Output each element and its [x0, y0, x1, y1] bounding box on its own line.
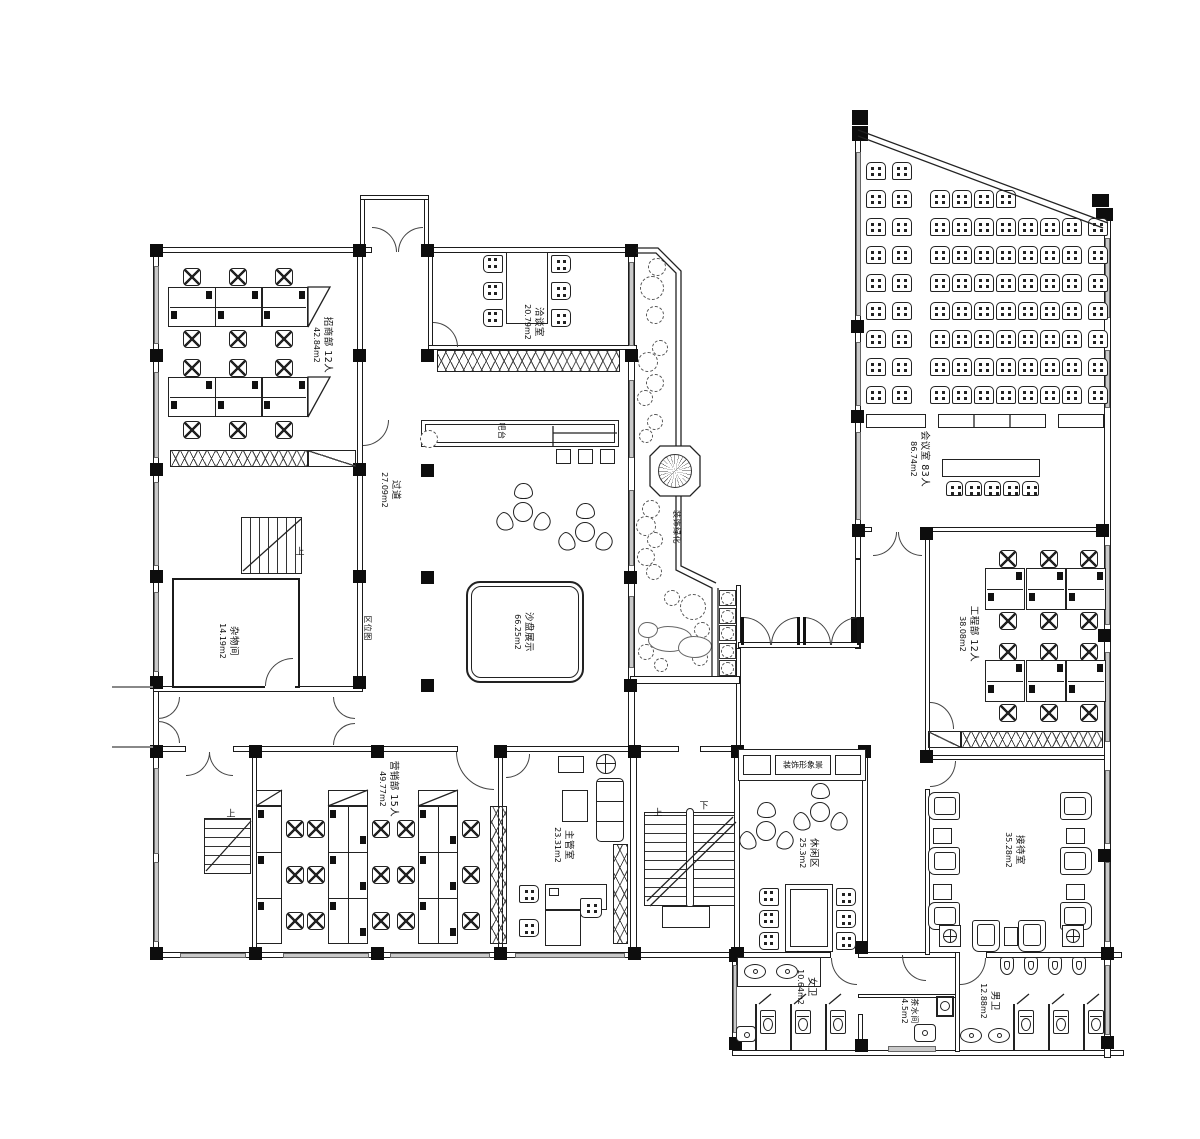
- column: [421, 679, 434, 692]
- column: [249, 745, 262, 758]
- conference-chair: [1088, 218, 1108, 236]
- column: [150, 570, 163, 583]
- shrub-icon: [646, 306, 664, 324]
- conference-chair: [996, 190, 1016, 208]
- computer-icon: [258, 902, 264, 910]
- door-swing: [433, 322, 458, 347]
- wall: [630, 746, 637, 958]
- conference-chair: [1018, 218, 1038, 236]
- shrub-icon: [721, 662, 734, 675]
- door-swing: [930, 702, 954, 729]
- conference-chair: [930, 386, 950, 404]
- office-chair: [183, 268, 201, 286]
- shrub-icon: [637, 390, 653, 406]
- leisure-chair: [836, 888, 856, 906]
- cabinet: [308, 450, 356, 467]
- computer-icon: [206, 381, 212, 389]
- stall-partition: [755, 1004, 757, 1050]
- room-name: 装饰形象景: [783, 761, 823, 770]
- computer-icon: [264, 311, 270, 319]
- conference-chair: [1003, 481, 1020, 496]
- room-label-jiedai: 接待室 35.28m2: [1003, 832, 1025, 868]
- stall-partition: [1048, 1004, 1050, 1050]
- sofa: [596, 778, 624, 842]
- side-table: [933, 828, 952, 844]
- conference-chair: [1062, 386, 1082, 404]
- desk-divider: [1028, 681, 1064, 682]
- column: [150, 947, 163, 960]
- bar-counter-inner: [425, 424, 615, 443]
- feature-panel: [743, 755, 771, 775]
- shrub-icon: [721, 592, 734, 605]
- computer-icon: [264, 401, 270, 409]
- computer-icon: [360, 928, 366, 936]
- stair-up-label: 上: [295, 545, 304, 558]
- column: [371, 745, 384, 758]
- column: [1098, 629, 1111, 642]
- shrub-icon: [646, 374, 664, 392]
- desk-divider: [419, 898, 457, 899]
- door-swing: [960, 958, 986, 985]
- office-chair: [307, 912, 325, 930]
- door-swing: [363, 420, 389, 446]
- meeting-chair: [551, 309, 571, 327]
- conference-chair: [1040, 218, 1060, 236]
- conference-chair: [965, 481, 982, 496]
- office-chair: [999, 612, 1017, 630]
- feature-panel: [835, 755, 861, 775]
- room-name: 接待室: [1013, 835, 1025, 865]
- column: [150, 463, 163, 476]
- office-chair: [286, 912, 304, 930]
- conference-chair: [930, 246, 950, 264]
- computer-icon: [258, 810, 264, 818]
- column: [421, 464, 434, 477]
- room-label-xingxiang: 装饰形象景: [783, 760, 823, 771]
- wall: [637, 952, 740, 958]
- guest-chair: [519, 885, 539, 903]
- conference-chair: [866, 330, 886, 348]
- computer-icon: [420, 902, 426, 910]
- sink: [960, 1028, 982, 1043]
- office-chair: [397, 912, 415, 930]
- room-label-yingxiao: 营销部 15人 49.77m2: [377, 761, 399, 818]
- room-label-qiatan: 洽谈室 20.79m2: [522, 304, 544, 340]
- conference-chair: [1022, 481, 1039, 496]
- cabinet: [437, 350, 620, 372]
- computer-icon: [252, 381, 258, 389]
- reception-armchair: [928, 847, 960, 875]
- door-swing: [158, 697, 180, 719]
- window: [629, 262, 634, 346]
- desk-divider: [1068, 589, 1104, 590]
- wall: [233, 746, 458, 752]
- office-chair: [462, 912, 480, 930]
- wall: [736, 648, 741, 748]
- room-label-nvwei: 女卫 10.64m2: [795, 969, 817, 1005]
- display-pedestal: [556, 449, 571, 464]
- computer-icon: [360, 882, 366, 890]
- room-name: 休闲区: [807, 838, 819, 868]
- conference-chair: [996, 386, 1016, 404]
- conference-chair: [996, 302, 1016, 320]
- room-label-lvhua: 装饰绿化: [671, 510, 681, 544]
- column: [628, 947, 641, 960]
- window: [888, 1046, 936, 1052]
- room-name: 吧台: [496, 423, 506, 440]
- conference-chair: [930, 330, 950, 348]
- side-table: [933, 884, 952, 900]
- room-area: 35.28m2: [1003, 832, 1013, 868]
- stall-partition: [1083, 1004, 1085, 1050]
- window: [1105, 770, 1110, 844]
- lounge-chair: [757, 802, 776, 818]
- door-swing: [771, 617, 799, 645]
- office-chair: [1080, 612, 1098, 630]
- room-area: 38.08m2: [957, 616, 967, 652]
- column: [249, 947, 262, 960]
- desk-return: [256, 790, 282, 806]
- side-table: [1066, 828, 1085, 844]
- meeting-chair: [551, 255, 571, 273]
- conference-chair: [892, 330, 912, 348]
- wall: [925, 755, 1110, 760]
- wall: [153, 247, 372, 253]
- room-label-chashui: 茶水间 4.5m2: [899, 998, 919, 1024]
- column: [1101, 1036, 1114, 1049]
- lounge-chair: [514, 483, 533, 499]
- office-chair: [397, 820, 415, 838]
- conference-chair: [930, 358, 950, 376]
- room-name: 主管室: [562, 830, 574, 860]
- conference-chair: [892, 190, 912, 208]
- conference-chair: [974, 386, 994, 404]
- column: [494, 947, 507, 960]
- conference-chair: [974, 246, 994, 264]
- reception-armchair: [1060, 847, 1092, 875]
- shrub-icon: [647, 532, 663, 548]
- conference-chair: [892, 358, 912, 376]
- room-name: 会议室 83人: [918, 431, 930, 488]
- planter-pedestal: [1062, 925, 1084, 947]
- column: [150, 349, 163, 362]
- conference-chair: [1040, 274, 1060, 292]
- room-area: 49.77m2: [377, 771, 387, 807]
- column: [624, 679, 637, 692]
- water-heater-dial: [940, 1001, 950, 1011]
- toilet: [1088, 1010, 1104, 1034]
- stairs-lower-left: [204, 818, 251, 874]
- conference-side-table: [866, 414, 926, 428]
- reception-armchair: [1018, 920, 1046, 952]
- conference-chair: [1062, 274, 1082, 292]
- conference-chair: [952, 358, 972, 376]
- window: [154, 482, 159, 566]
- desk-divider: [329, 898, 367, 899]
- stairs-upper-left: [241, 517, 302, 574]
- conference-chair: [974, 358, 994, 376]
- leisure-chair: [759, 888, 779, 906]
- conference-chair: [866, 246, 886, 264]
- computer-icon: [218, 401, 224, 409]
- column: [353, 570, 366, 583]
- meeting-chair: [483, 282, 503, 300]
- conference-side-table: [1058, 414, 1104, 428]
- stall-partition: [1013, 1004, 1015, 1050]
- door-swing: [831, 617, 859, 645]
- office-chair: [229, 421, 247, 439]
- conference-side-table: [938, 414, 1046, 428]
- shrub-icon: [638, 352, 658, 372]
- conference-chair: [974, 190, 994, 208]
- computer-icon: [1097, 664, 1103, 672]
- computer-icon: [258, 856, 264, 864]
- manager-desk-return: [545, 910, 581, 946]
- conference-chair: [892, 386, 912, 404]
- office-chair: [275, 421, 293, 439]
- conference-head-table: [942, 459, 1040, 477]
- column: [624, 571, 637, 584]
- stair-up-label: 上: [226, 807, 235, 820]
- office-chair: [1040, 550, 1058, 568]
- conference-chair: [1088, 358, 1108, 376]
- conference-chair: [930, 302, 950, 320]
- window: [856, 152, 861, 316]
- window: [856, 432, 861, 520]
- conference-chair: [1018, 274, 1038, 292]
- desk-divider: [987, 681, 1023, 682]
- conference-chair: [1040, 246, 1060, 264]
- conference-chair: [1062, 218, 1082, 236]
- office-chair: [462, 820, 480, 838]
- door-swing: [803, 617, 831, 645]
- door-swing: [209, 752, 233, 776]
- side-table: [1066, 884, 1085, 900]
- office-chair: [1040, 704, 1058, 722]
- door-swing: [372, 227, 397, 252]
- shrub-icon: [640, 276, 664, 300]
- conference-chair: [974, 330, 994, 348]
- toilet: [1053, 1010, 1069, 1034]
- computer-icon: [1057, 664, 1063, 672]
- conference-chair: [892, 302, 912, 320]
- desk-divider: [170, 397, 306, 398]
- column: [1098, 849, 1111, 862]
- meeting-chair: [483, 255, 503, 273]
- conference-chair: [952, 274, 972, 292]
- toilet: [1018, 1010, 1034, 1034]
- column: [628, 745, 641, 758]
- door-swing: [902, 955, 926, 981]
- column: [852, 126, 868, 141]
- office-chair: [462, 866, 480, 884]
- computer-icon: [252, 291, 258, 299]
- conference-chair: [1018, 302, 1038, 320]
- desk-divider: [1068, 681, 1104, 682]
- urinal: [1072, 957, 1086, 975]
- computer-icon: [171, 401, 177, 409]
- door-swing: [398, 227, 423, 252]
- computer-icon: [330, 810, 336, 818]
- computer-icon: [330, 856, 336, 864]
- window: [1105, 965, 1110, 1035]
- column: [150, 244, 163, 257]
- desk-divider: [170, 307, 306, 308]
- conference-chair: [996, 218, 1016, 236]
- office-chair: [275, 330, 293, 348]
- computer-icon: [360, 836, 366, 844]
- room-area: 14.19m2: [217, 623, 227, 659]
- room-label-xiuxian: 休闲区 25.3m2: [797, 838, 819, 869]
- leisure-chair: [836, 910, 856, 928]
- room-label-quweitu: 区位图: [362, 615, 372, 641]
- room-name: 女卫: [805, 977, 817, 997]
- window: [154, 862, 159, 942]
- office-chair: [275, 359, 293, 377]
- room-label-zhaoshang: 招商部 12人 42.84m2: [311, 317, 333, 374]
- column: [421, 571, 434, 584]
- conference-chair: [866, 162, 886, 180]
- conference-chair: [1040, 358, 1060, 376]
- window: [629, 596, 634, 668]
- room-area: 42.84m2: [311, 327, 321, 363]
- office-chair: [999, 704, 1017, 722]
- ceiling-fixture: [596, 754, 616, 774]
- lounge-chair: [774, 829, 797, 853]
- room-name: 男卫: [988, 991, 1000, 1011]
- conference-chair: [930, 190, 950, 208]
- computer-icon: [420, 856, 426, 864]
- door-swing: [158, 721, 180, 743]
- desk-divider: [1028, 589, 1064, 590]
- room-area: 20.79m2: [522, 304, 532, 340]
- lounge-chair: [531, 510, 554, 534]
- door-leaf: [741, 617, 744, 645]
- cabinet: [928, 731, 961, 748]
- window: [154, 266, 159, 344]
- conference-chair: [996, 246, 1016, 264]
- conference-chair: [974, 302, 994, 320]
- door-swing: [333, 697, 355, 719]
- toilet: [795, 1010, 811, 1034]
- window: [283, 953, 369, 958]
- room-name: 招商部 12人: [321, 317, 333, 374]
- room-name: 茶水间: [909, 998, 919, 1024]
- office-chair: [397, 866, 415, 884]
- guest-chair: [519, 919, 539, 937]
- window: [629, 380, 634, 458]
- desk-return: [418, 790, 458, 806]
- computer-icon: [450, 882, 456, 890]
- conference-chair: [1062, 246, 1082, 264]
- wall: [922, 527, 1110, 532]
- room-name: 工程部 12人: [967, 606, 979, 663]
- cabinet: [961, 731, 1103, 748]
- toilet: [830, 1010, 846, 1034]
- room-label-gongcheng: 工程部 12人 38.08m2: [957, 606, 979, 663]
- conference-chair: [974, 218, 994, 236]
- desk-divider: [438, 807, 439, 943]
- column: [851, 320, 864, 333]
- office-chair: [229, 330, 247, 348]
- leisure-chair: [759, 932, 779, 950]
- computer-icon: [1029, 593, 1035, 601]
- computer-icon: [299, 381, 305, 389]
- column: [421, 349, 434, 362]
- sink: [744, 964, 766, 979]
- computer-icon: [1057, 572, 1063, 580]
- stall-partition: [790, 1004, 792, 1050]
- office-chair: [999, 550, 1017, 568]
- wall: [496, 746, 642, 752]
- cabinet: [490, 806, 507, 944]
- conference-chair: [1088, 246, 1108, 264]
- conference-chair: [952, 386, 972, 404]
- shrub-icon: [648, 258, 666, 276]
- room-label-guodao: 过道 27.09m2: [379, 472, 401, 508]
- window: [856, 342, 861, 406]
- computer-icon: [206, 291, 212, 299]
- room-area: 86.74m2: [908, 441, 918, 477]
- desk-phone: [549, 888, 559, 896]
- conference-chair: [1040, 330, 1060, 348]
- window: [154, 372, 159, 458]
- desk-divider: [419, 852, 457, 853]
- door-swing: [831, 958, 857, 985]
- conference-chair: [866, 386, 886, 404]
- conference-chair: [1040, 302, 1060, 320]
- office-chair: [183, 330, 201, 348]
- room-label-huiyi: 会议室 83人 86.74m2: [908, 431, 930, 488]
- door-swing: [873, 532, 897, 556]
- conference-chair: [974, 274, 994, 292]
- door-leaf: [803, 617, 806, 645]
- desk-divider: [329, 852, 367, 853]
- column: [852, 110, 868, 125]
- room-label-batai: 吧台: [496, 423, 506, 440]
- cabinet: [170, 450, 308, 467]
- conference-chair: [946, 481, 963, 496]
- conference-chair: [892, 246, 912, 264]
- office-chair: [1080, 550, 1098, 568]
- conference-chair: [952, 190, 972, 208]
- conference-chair: [1040, 386, 1060, 404]
- computer-icon: [420, 810, 426, 818]
- room-name: 装饰绿化: [671, 510, 681, 544]
- conference-chair: [892, 218, 912, 236]
- column: [625, 244, 638, 257]
- computer-icon: [1029, 685, 1035, 693]
- door-swing: [186, 752, 210, 776]
- office-chair: [1040, 643, 1058, 661]
- window: [390, 953, 490, 958]
- door-leaf: [797, 617, 800, 645]
- computer-icon: [218, 311, 224, 319]
- column: [1092, 194, 1109, 207]
- office-chair: [372, 820, 390, 838]
- lounge-chair: [576, 503, 595, 519]
- column: [353, 676, 366, 689]
- shrub-icon: [654, 658, 668, 672]
- sink: [988, 1028, 1010, 1043]
- shrub-icon: [639, 429, 653, 443]
- room-name: 沙盘展示: [522, 612, 534, 652]
- conference-chair: [1018, 358, 1038, 376]
- lounge-table: [575, 522, 595, 542]
- conference-chair: [866, 218, 886, 236]
- conference-chair: [866, 358, 886, 376]
- manager-chair: [580, 898, 602, 918]
